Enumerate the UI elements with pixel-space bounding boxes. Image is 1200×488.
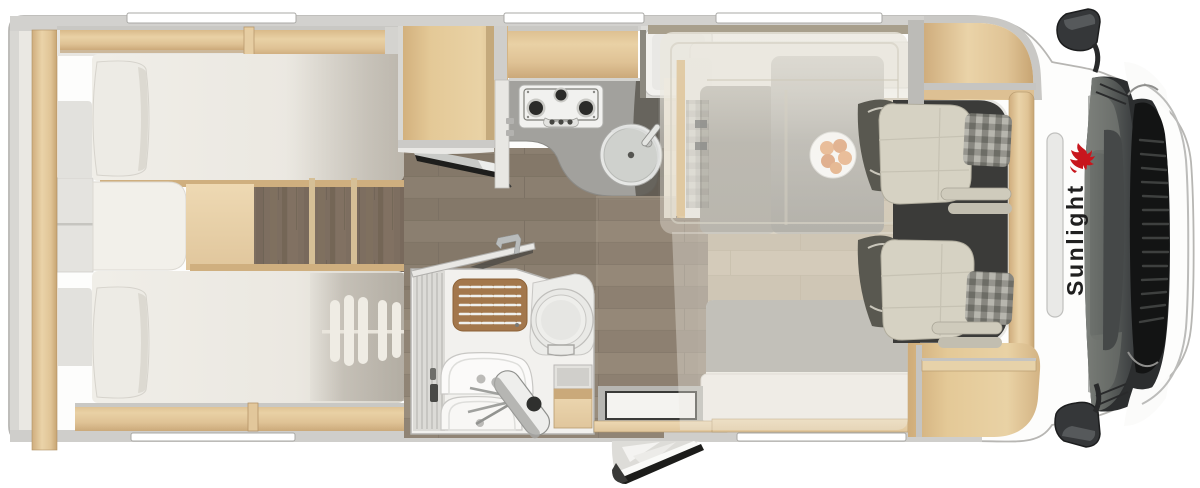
svg-text:Sunlight: Sunlight <box>1062 183 1088 296</box>
